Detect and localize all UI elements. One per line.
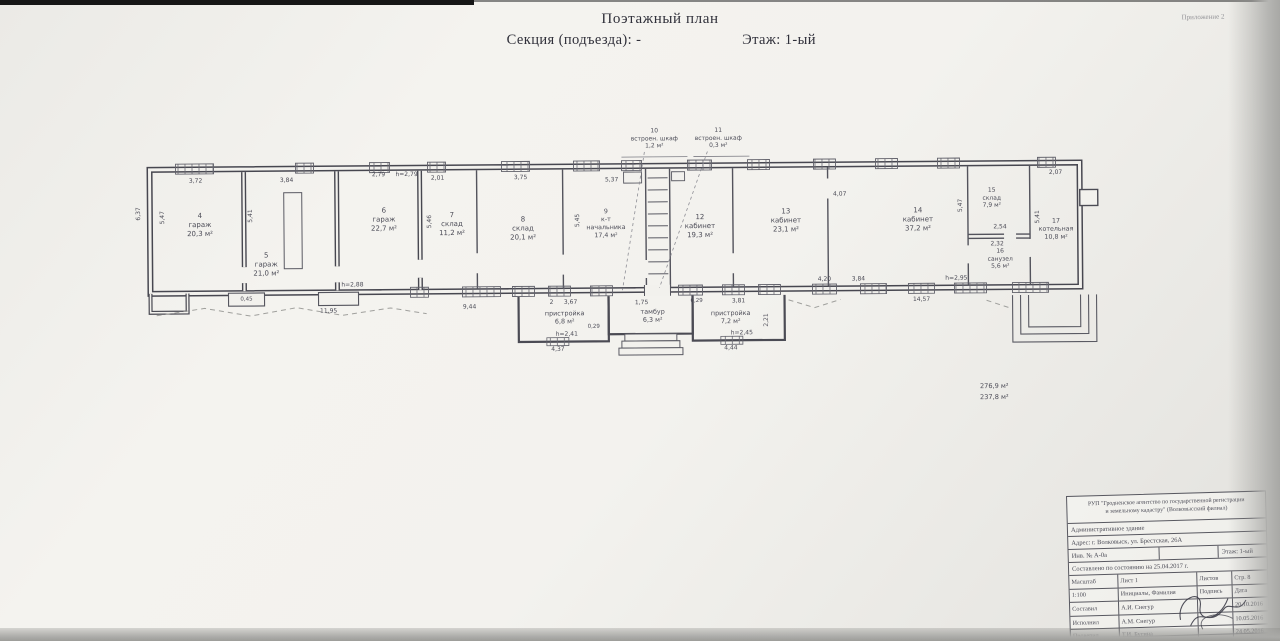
chimney-ledge	[1080, 189, 1098, 205]
interior-walls-thin	[477, 166, 1031, 289]
ground-aprons	[157, 298, 1011, 317]
inspection-pit	[284, 193, 303, 269]
inventory-number: Инв. № А-0а	[1069, 547, 1159, 562]
window-openings	[175, 157, 1056, 299]
outer-walls	[150, 163, 1081, 313]
built-in-closets	[624, 172, 685, 183]
label-underlines	[621, 156, 749, 157]
row-role: Составил	[1070, 602, 1118, 616]
entrance-door-gap	[644, 285, 670, 296]
entrance-steps	[619, 334, 683, 356]
inventory-value	[1158, 546, 1218, 560]
porch-steps	[1013, 294, 1097, 342]
sheets-label: Листов	[1196, 571, 1231, 585]
scale-value: 1:100	[1070, 588, 1118, 602]
staircase	[648, 178, 669, 274]
scan-artifact-page-edge-bottom	[0, 628, 1280, 641]
scan-artifact-page-edge-right	[1228, 0, 1280, 641]
scanned-floor-plan-page: Поэтажный план Секция (подъезда): - Этаж…	[0, 0, 1280, 641]
interior-walls-thick	[244, 171, 421, 291]
scale-label: Масштаб	[1069, 575, 1117, 589]
